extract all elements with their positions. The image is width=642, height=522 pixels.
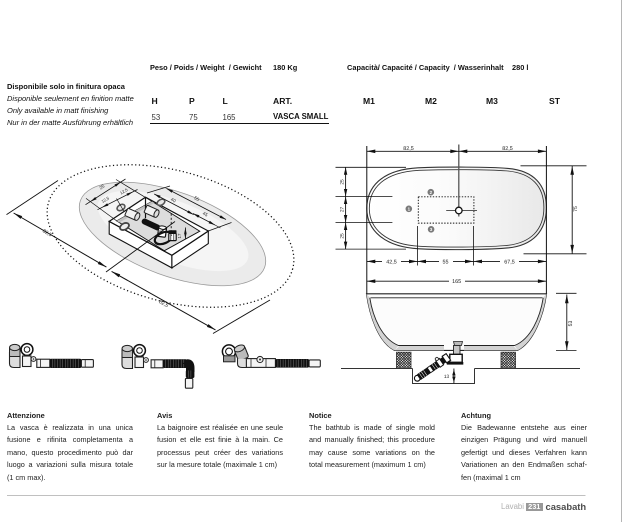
svg-text:53: 53 (568, 321, 574, 327)
svg-text:25: 25 (340, 233, 346, 239)
svg-text:42,5: 42,5 (386, 259, 397, 265)
svg-text:13: 13 (444, 374, 450, 380)
svg-text:82,5: 82,5 (502, 146, 513, 152)
svg-text:25: 25 (340, 179, 346, 185)
svg-text:82,5: 82,5 (158, 299, 170, 309)
svg-text:67,5: 67,5 (504, 259, 515, 265)
svg-text:27: 27 (340, 207, 346, 213)
svg-text:75: 75 (573, 206, 579, 212)
svg-text:55: 55 (443, 259, 449, 265)
svg-text:17: 17 (177, 233, 182, 238)
svg-text:82,5: 82,5 (403, 146, 414, 152)
svg-text:165: 165 (452, 279, 461, 285)
